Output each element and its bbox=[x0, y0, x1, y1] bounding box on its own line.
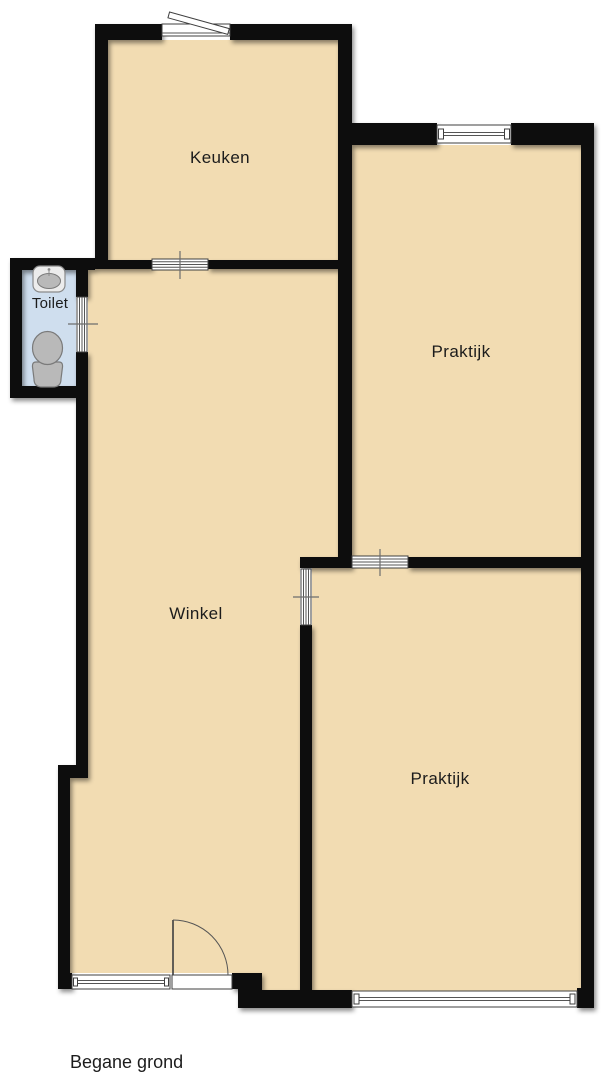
wall bbox=[95, 24, 108, 269]
wall bbox=[58, 973, 72, 989]
wall bbox=[232, 973, 238, 989]
wall bbox=[230, 24, 352, 40]
wall bbox=[76, 352, 88, 778]
window-icon bbox=[352, 991, 577, 1007]
wall bbox=[208, 260, 352, 269]
wall bbox=[577, 988, 594, 1008]
toilet-icon bbox=[32, 332, 62, 388]
wall bbox=[300, 557, 352, 568]
floor-title: Begane grond bbox=[70, 1052, 183, 1072]
wall bbox=[352, 123, 437, 145]
wall bbox=[338, 24, 352, 568]
wall bbox=[581, 123, 594, 1008]
floorplan-page: Keuken Toilet Praktijk Winkel Praktijk B… bbox=[0, 0, 612, 1080]
wall bbox=[76, 258, 88, 297]
wall bbox=[238, 990, 352, 1008]
window-icon bbox=[437, 125, 511, 143]
door-icon bbox=[162, 12, 230, 36]
room-keuken-label: Keuken bbox=[190, 148, 250, 167]
wall bbox=[10, 258, 22, 398]
room-winkel-label: Winkel bbox=[169, 604, 222, 623]
window-icon bbox=[72, 975, 170, 989]
wall bbox=[58, 765, 70, 989]
wall bbox=[408, 557, 581, 568]
room-winkel-floor bbox=[70, 269, 338, 990]
sink-icon bbox=[33, 266, 65, 292]
floorplan-canvas: Keuken Toilet Praktijk Winkel Praktijk B… bbox=[0, 0, 612, 1080]
room-toilet-label: Toilet bbox=[32, 295, 69, 312]
room-praktijk-onder-label: Praktijk bbox=[411, 769, 470, 788]
wall bbox=[95, 260, 152, 269]
room-praktijk-boven-label: Praktijk bbox=[432, 342, 491, 361]
wall bbox=[300, 625, 312, 990]
